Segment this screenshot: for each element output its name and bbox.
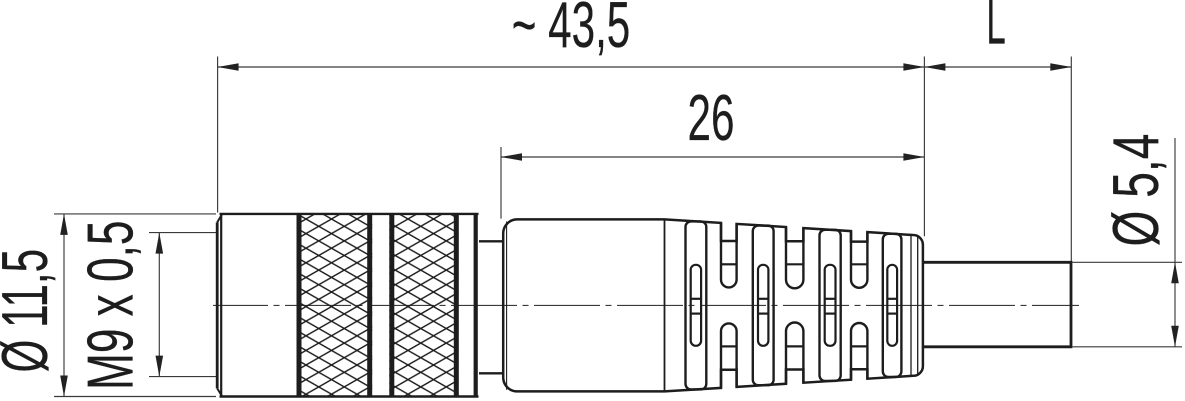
svg-text:Ø 11,5: Ø 11,5 [0, 249, 61, 373]
svg-text:L: L [986, 0, 1005, 59]
svg-text:26: 26 [688, 81, 735, 155]
svg-text:~ 43,5: ~ 43,5 [512, 0, 631, 61]
svg-text:Ø 5,4: Ø 5,4 [1099, 134, 1172, 247]
svg-text:M9 x 0,5: M9 x 0,5 [74, 221, 147, 390]
